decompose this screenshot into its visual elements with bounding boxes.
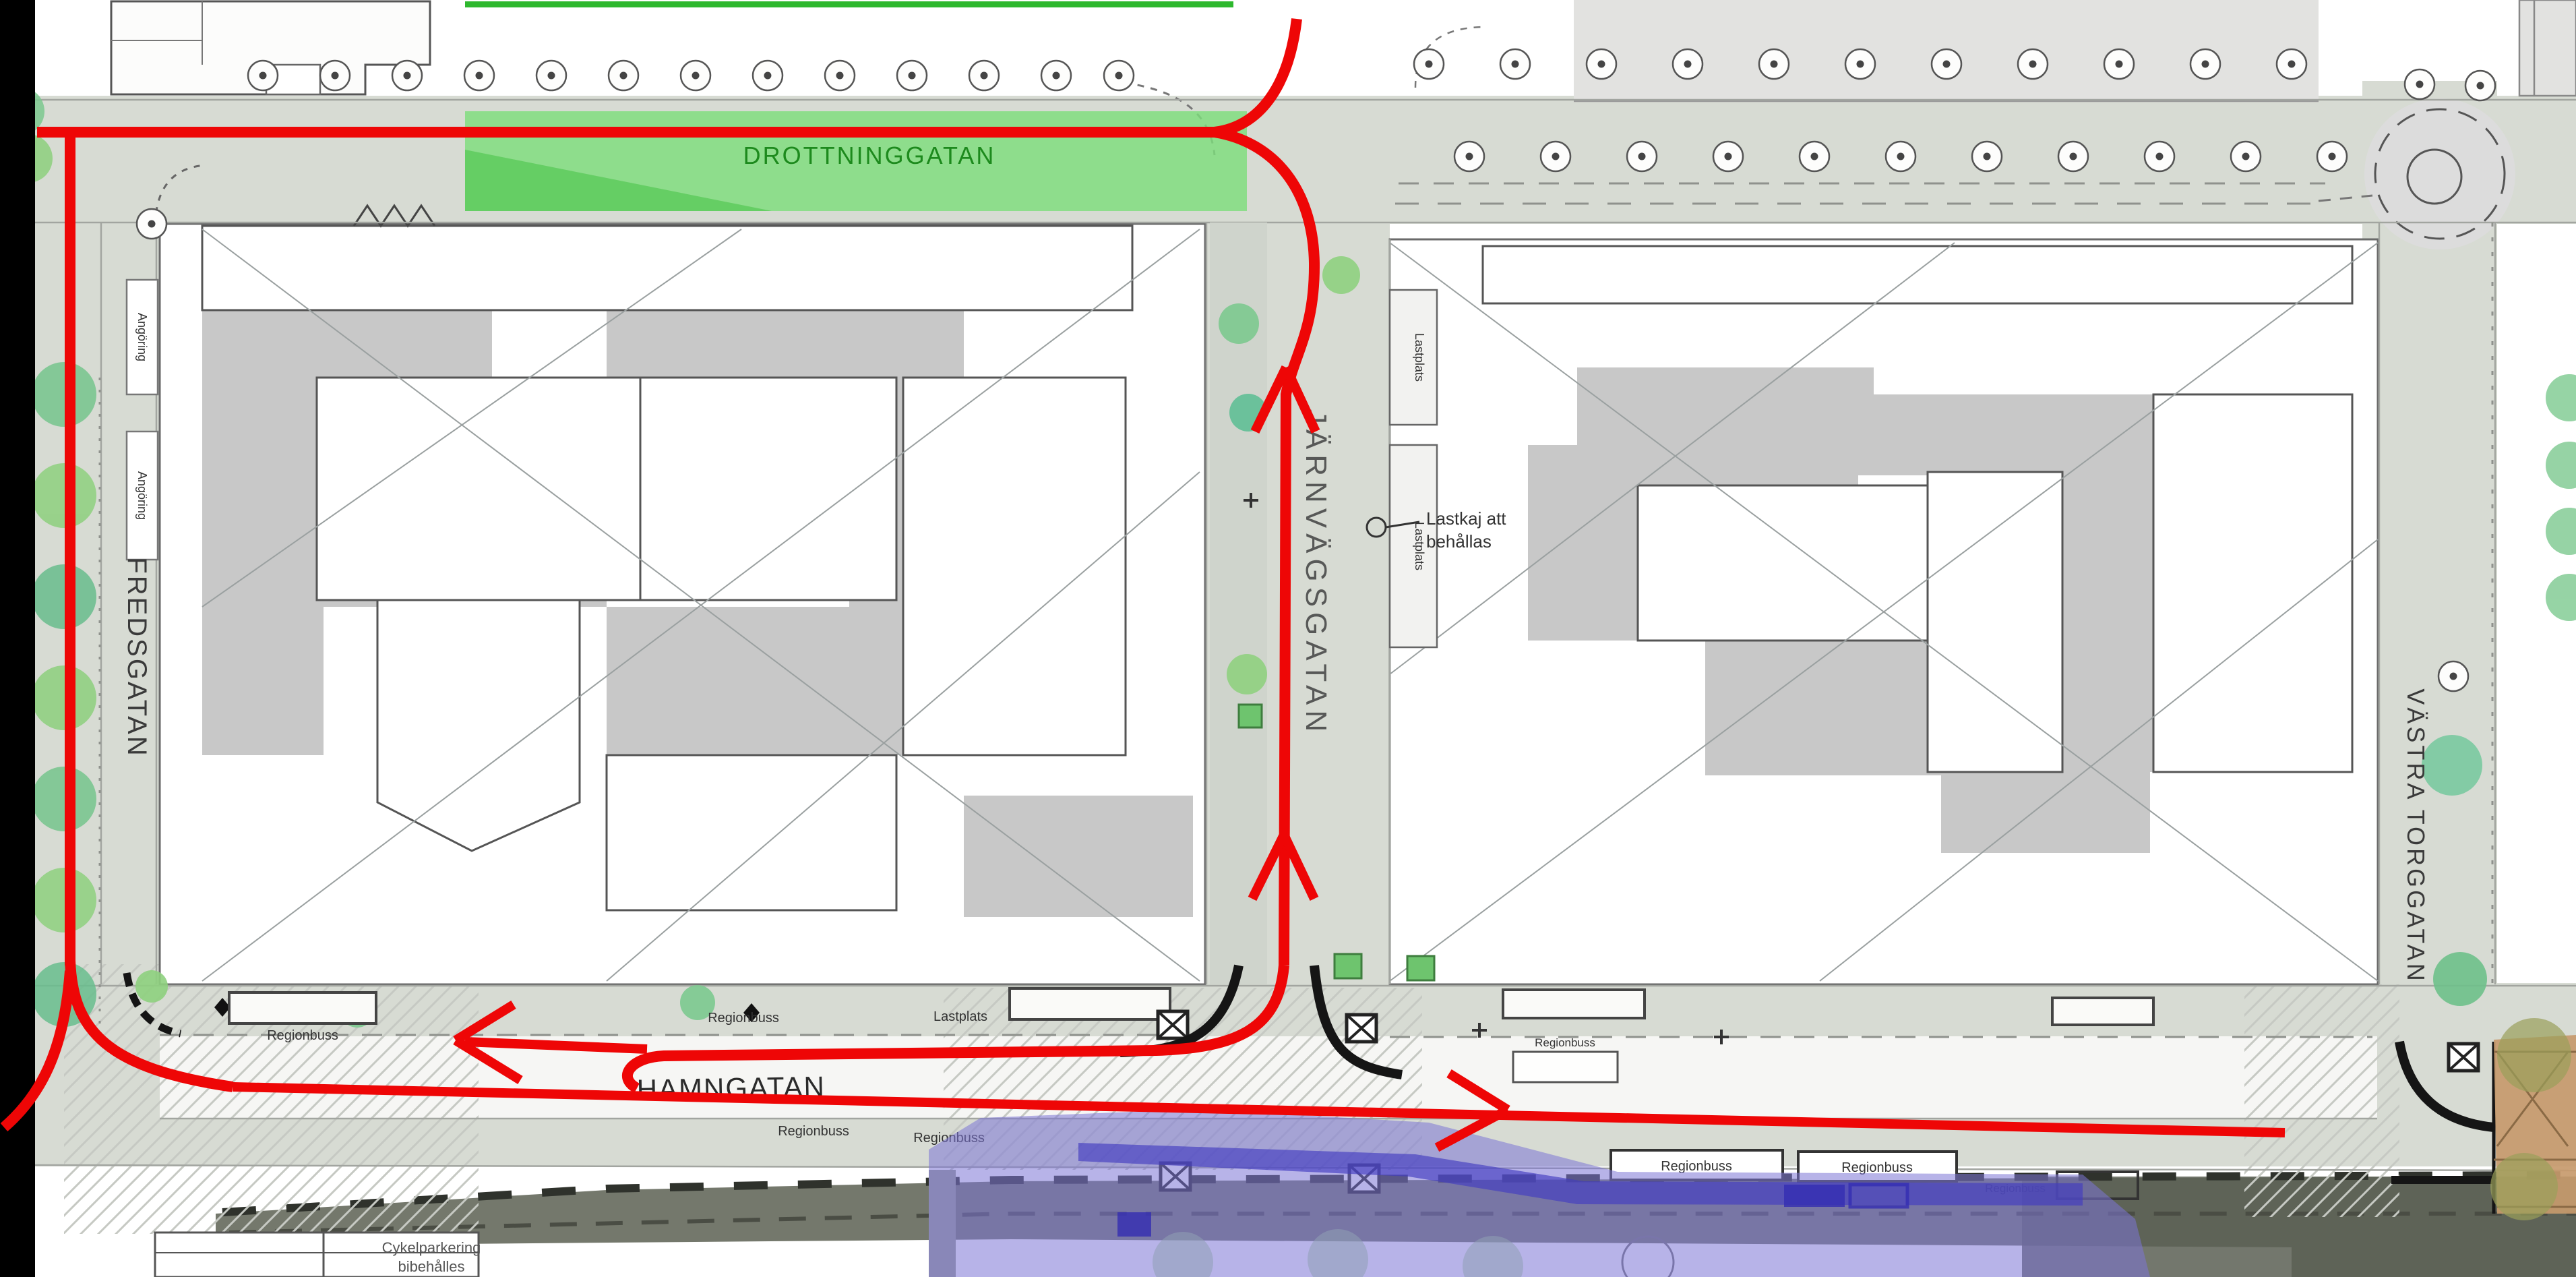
street-label-fredsgatan: FREDSGATAN bbox=[122, 557, 152, 757]
regionbus-label: Regionbuss bbox=[1535, 1036, 1595, 1049]
regionbus-label: Regionbuss bbox=[1841, 1160, 1913, 1175]
note-line1: Cykelparkering bbox=[382, 1239, 481, 1256]
regionbus-label: Regionbuss bbox=[708, 1011, 779, 1026]
note-line2: bibehålles bbox=[398, 1258, 464, 1275]
regionbus-label: Regionbuss bbox=[1661, 1159, 1732, 1174]
regionbus-label: Regionbuss bbox=[778, 1124, 849, 1139]
bay-label: Lastplats bbox=[1413, 522, 1426, 570]
green-top-line bbox=[465, 1, 1233, 7]
street-label-jarnvagsgatan: JÄRNVÄGSGATAN bbox=[1299, 409, 1332, 737]
edge-strip bbox=[0, 0, 35, 1277]
map-canvas: Regionbuss Regionbuss Lastplats Regionbu… bbox=[0, 0, 2576, 1277]
brown-area bbox=[2490, 1018, 2576, 1220]
plan-map: Regionbuss Regionbuss Lastplats Regionbu… bbox=[0, 0, 2576, 1277]
lastplats-label: Lastplats bbox=[933, 1009, 987, 1024]
callout-line1: Lastkaj att bbox=[1426, 508, 1506, 529]
street-label-drottninggatan: DROTTNINGGATAN bbox=[743, 142, 996, 169]
bay-label: Angöring bbox=[135, 313, 149, 361]
block-east bbox=[1390, 239, 2378, 984]
street-label-vastra-torggatan: VÄSTRA TORGGATAN bbox=[2402, 688, 2430, 983]
bay-label: Lastplats bbox=[1413, 333, 1426, 382]
bay-label: Angöring bbox=[135, 471, 149, 520]
regionbus-label: Regionbuss bbox=[267, 1028, 338, 1043]
callout-line2: behållas bbox=[1426, 531, 1492, 552]
